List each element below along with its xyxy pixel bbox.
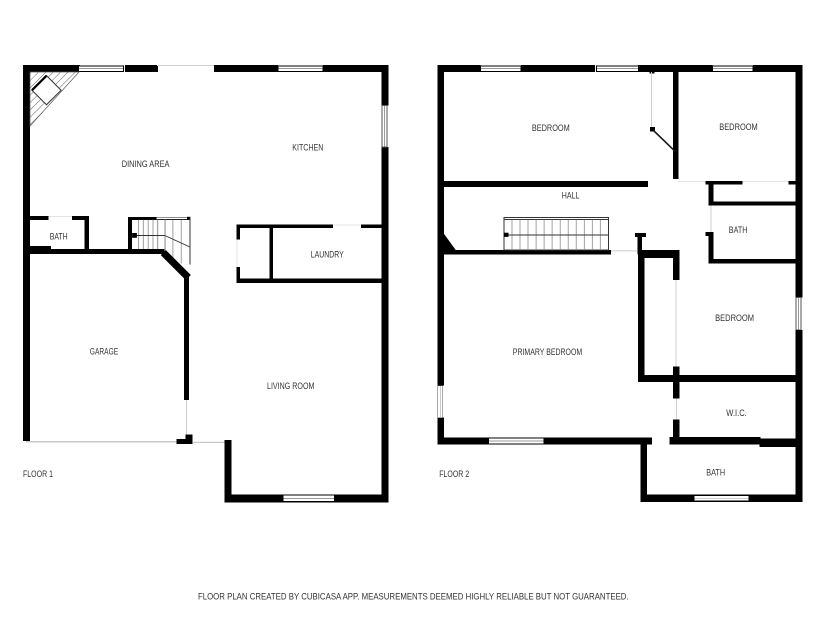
svg-text:HALL: HALL xyxy=(562,190,580,200)
svg-text:GARAGE: GARAGE xyxy=(90,347,118,357)
svg-text:FLOOR PLAN CREATED BY CUBICASA: FLOOR PLAN CREATED BY CUBICASA APP. MEAS… xyxy=(198,592,629,602)
svg-text:LAUNDRY: LAUNDRY xyxy=(311,250,344,260)
svg-text:FLOOR 2: FLOOR 2 xyxy=(439,469,469,479)
svg-text:BATH: BATH xyxy=(706,467,725,477)
svg-text:BEDROOM: BEDROOM xyxy=(715,313,754,323)
svg-text:BEDROOM: BEDROOM xyxy=(532,123,570,133)
svg-text:FLOOR 1: FLOOR 1 xyxy=(23,469,53,479)
svg-text:DINING AREA: DINING AREA xyxy=(122,159,170,169)
svg-text:PRIMARY BEDROOM: PRIMARY BEDROOM xyxy=(513,347,582,357)
svg-text:W.I.C.: W.I.C. xyxy=(726,408,747,418)
svg-text:KITCHEN: KITCHEN xyxy=(292,143,323,153)
svg-text:LIVING ROOM: LIVING ROOM xyxy=(267,381,314,391)
svg-text:BEDROOM: BEDROOM xyxy=(719,122,758,132)
svg-text:BATH: BATH xyxy=(50,231,68,241)
svg-text:BATH: BATH xyxy=(729,225,748,235)
